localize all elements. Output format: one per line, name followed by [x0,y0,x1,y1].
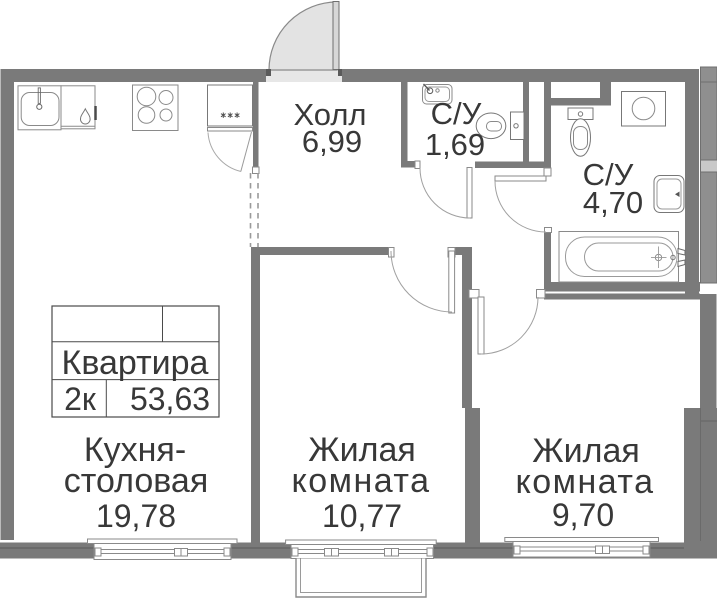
svg-text:10,77: 10,77 [322,498,402,534]
svg-text:комната: комната [291,462,430,500]
svg-text:1,69: 1,69 [425,127,485,162]
svg-text:6,99: 6,99 [302,124,362,159]
svg-text:53,63: 53,63 [130,381,210,417]
svg-text:комната: комната [515,463,654,501]
svg-text:Квартира: Квартира [62,344,209,382]
svg-text:2к: 2к [64,381,97,417]
svg-text:столовая: столовая [64,462,208,500]
svg-text:19,78: 19,78 [96,498,176,534]
svg-text:С/У: С/У [431,96,482,131]
svg-text:9,70: 9,70 [552,497,614,533]
svg-text:4,70: 4,70 [583,185,643,220]
